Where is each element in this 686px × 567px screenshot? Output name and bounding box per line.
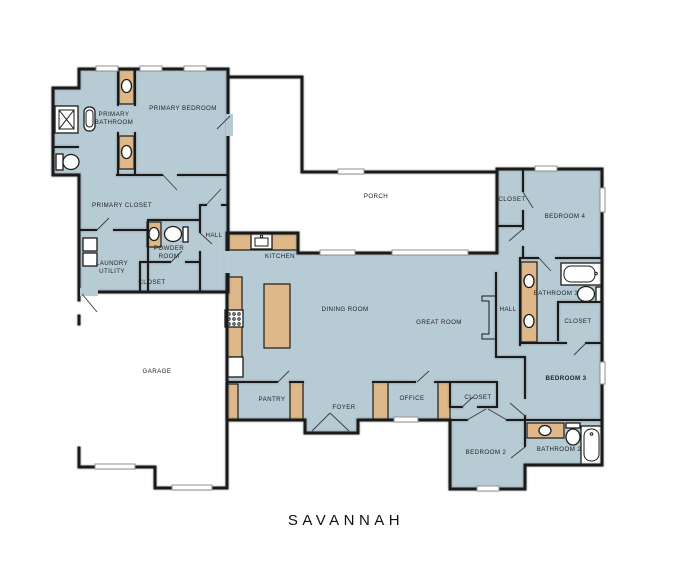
- room-label-hall-left: HALL: [205, 232, 222, 239]
- garage-walls: [79, 292, 227, 488]
- foyer-column-right: [373, 382, 388, 420]
- bathroom2-bathtub-icon: [581, 426, 602, 465]
- room-label-closet-hall: CLOSET: [564, 318, 591, 325]
- foyer-column-left: [290, 382, 303, 420]
- room-label-powder-room-line2: ROOM: [159, 253, 180, 260]
- room-label-powder-room-line1: POWDER: [154, 245, 184, 252]
- room-label-primary-closet: PRIMARY CLOSET: [92, 202, 152, 209]
- floor-plan-canvas: PRIMARY BATHROOM PRIMARY BEDROOM PRIMARY…: [0, 0, 686, 567]
- bathroom3-toilet-icon: [578, 287, 602, 303]
- shower-icon: [55, 106, 78, 133]
- floor-plan-page: PRIMARY BATHROOM PRIMARY BEDROOM PRIMARY…: [0, 0, 686, 567]
- room-label-office: OFFICE: [399, 395, 424, 402]
- porch-walls: [230, 77, 497, 172]
- room-label-bathroom3: BATHROOM 3: [534, 290, 579, 297]
- room-label-bedroom4: BEDROOM 4: [545, 213, 586, 220]
- kitchen-sink-icon: [251, 234, 272, 249]
- room-label-laundry-line2: UTILITY: [99, 268, 125, 275]
- plan-title: SAVANNAH: [288, 512, 404, 529]
- room-label-closet-office: CLOSET: [464, 394, 491, 401]
- kitchen-island: [264, 284, 290, 348]
- room-label-primary-bedroom: PRIMARY BEDROOM: [149, 105, 217, 112]
- room-label-pantry: PANTRY: [259, 396, 286, 403]
- room-label-laundry-line1: LAUNDRY: [96, 260, 128, 267]
- room-label-great-room: GREAT ROOM: [416, 319, 462, 326]
- office-column: [438, 382, 450, 420]
- room-label-closet-laundry: CLOSET: [138, 279, 165, 286]
- room-label-dining-room: DINING ROOM: [321, 306, 368, 313]
- room-label-closet-bedroom4: CLOSET: [498, 196, 525, 203]
- refrigerator-icon: [227, 357, 243, 377]
- room-label-bedroom3: BEDROOM 3: [545, 375, 586, 382]
- primary-bathtub-icon: [84, 107, 95, 131]
- bathroom2-toilet-icon: [566, 423, 580, 445]
- room-label-foyer: FOYER: [332, 404, 355, 411]
- room-label-garage: GARAGE: [143, 368, 172, 375]
- room-label-primary-bathroom-line1: PRIMARY: [99, 111, 130, 118]
- primary-toilet-icon: [56, 154, 79, 170]
- room-label-bedroom2: BEDROOM 2: [466, 449, 507, 456]
- room-label-primary-bathroom-line2: BATHROOM: [95, 119, 134, 126]
- bathroom2-sink-icon: [539, 426, 551, 436]
- powder-toilet-icon: [165, 227, 189, 243]
- room-label-hall-right: HALL: [499, 306, 516, 313]
- powder-sink-icon: [149, 228, 159, 241]
- room-label-kitchen: KITCHEN: [265, 253, 295, 260]
- room-label-bathroom2: BATHROOM 2: [537, 446, 582, 453]
- room-label-porch: PORCH: [364, 193, 388, 200]
- bathroom3-bathtub-icon: [561, 263, 602, 285]
